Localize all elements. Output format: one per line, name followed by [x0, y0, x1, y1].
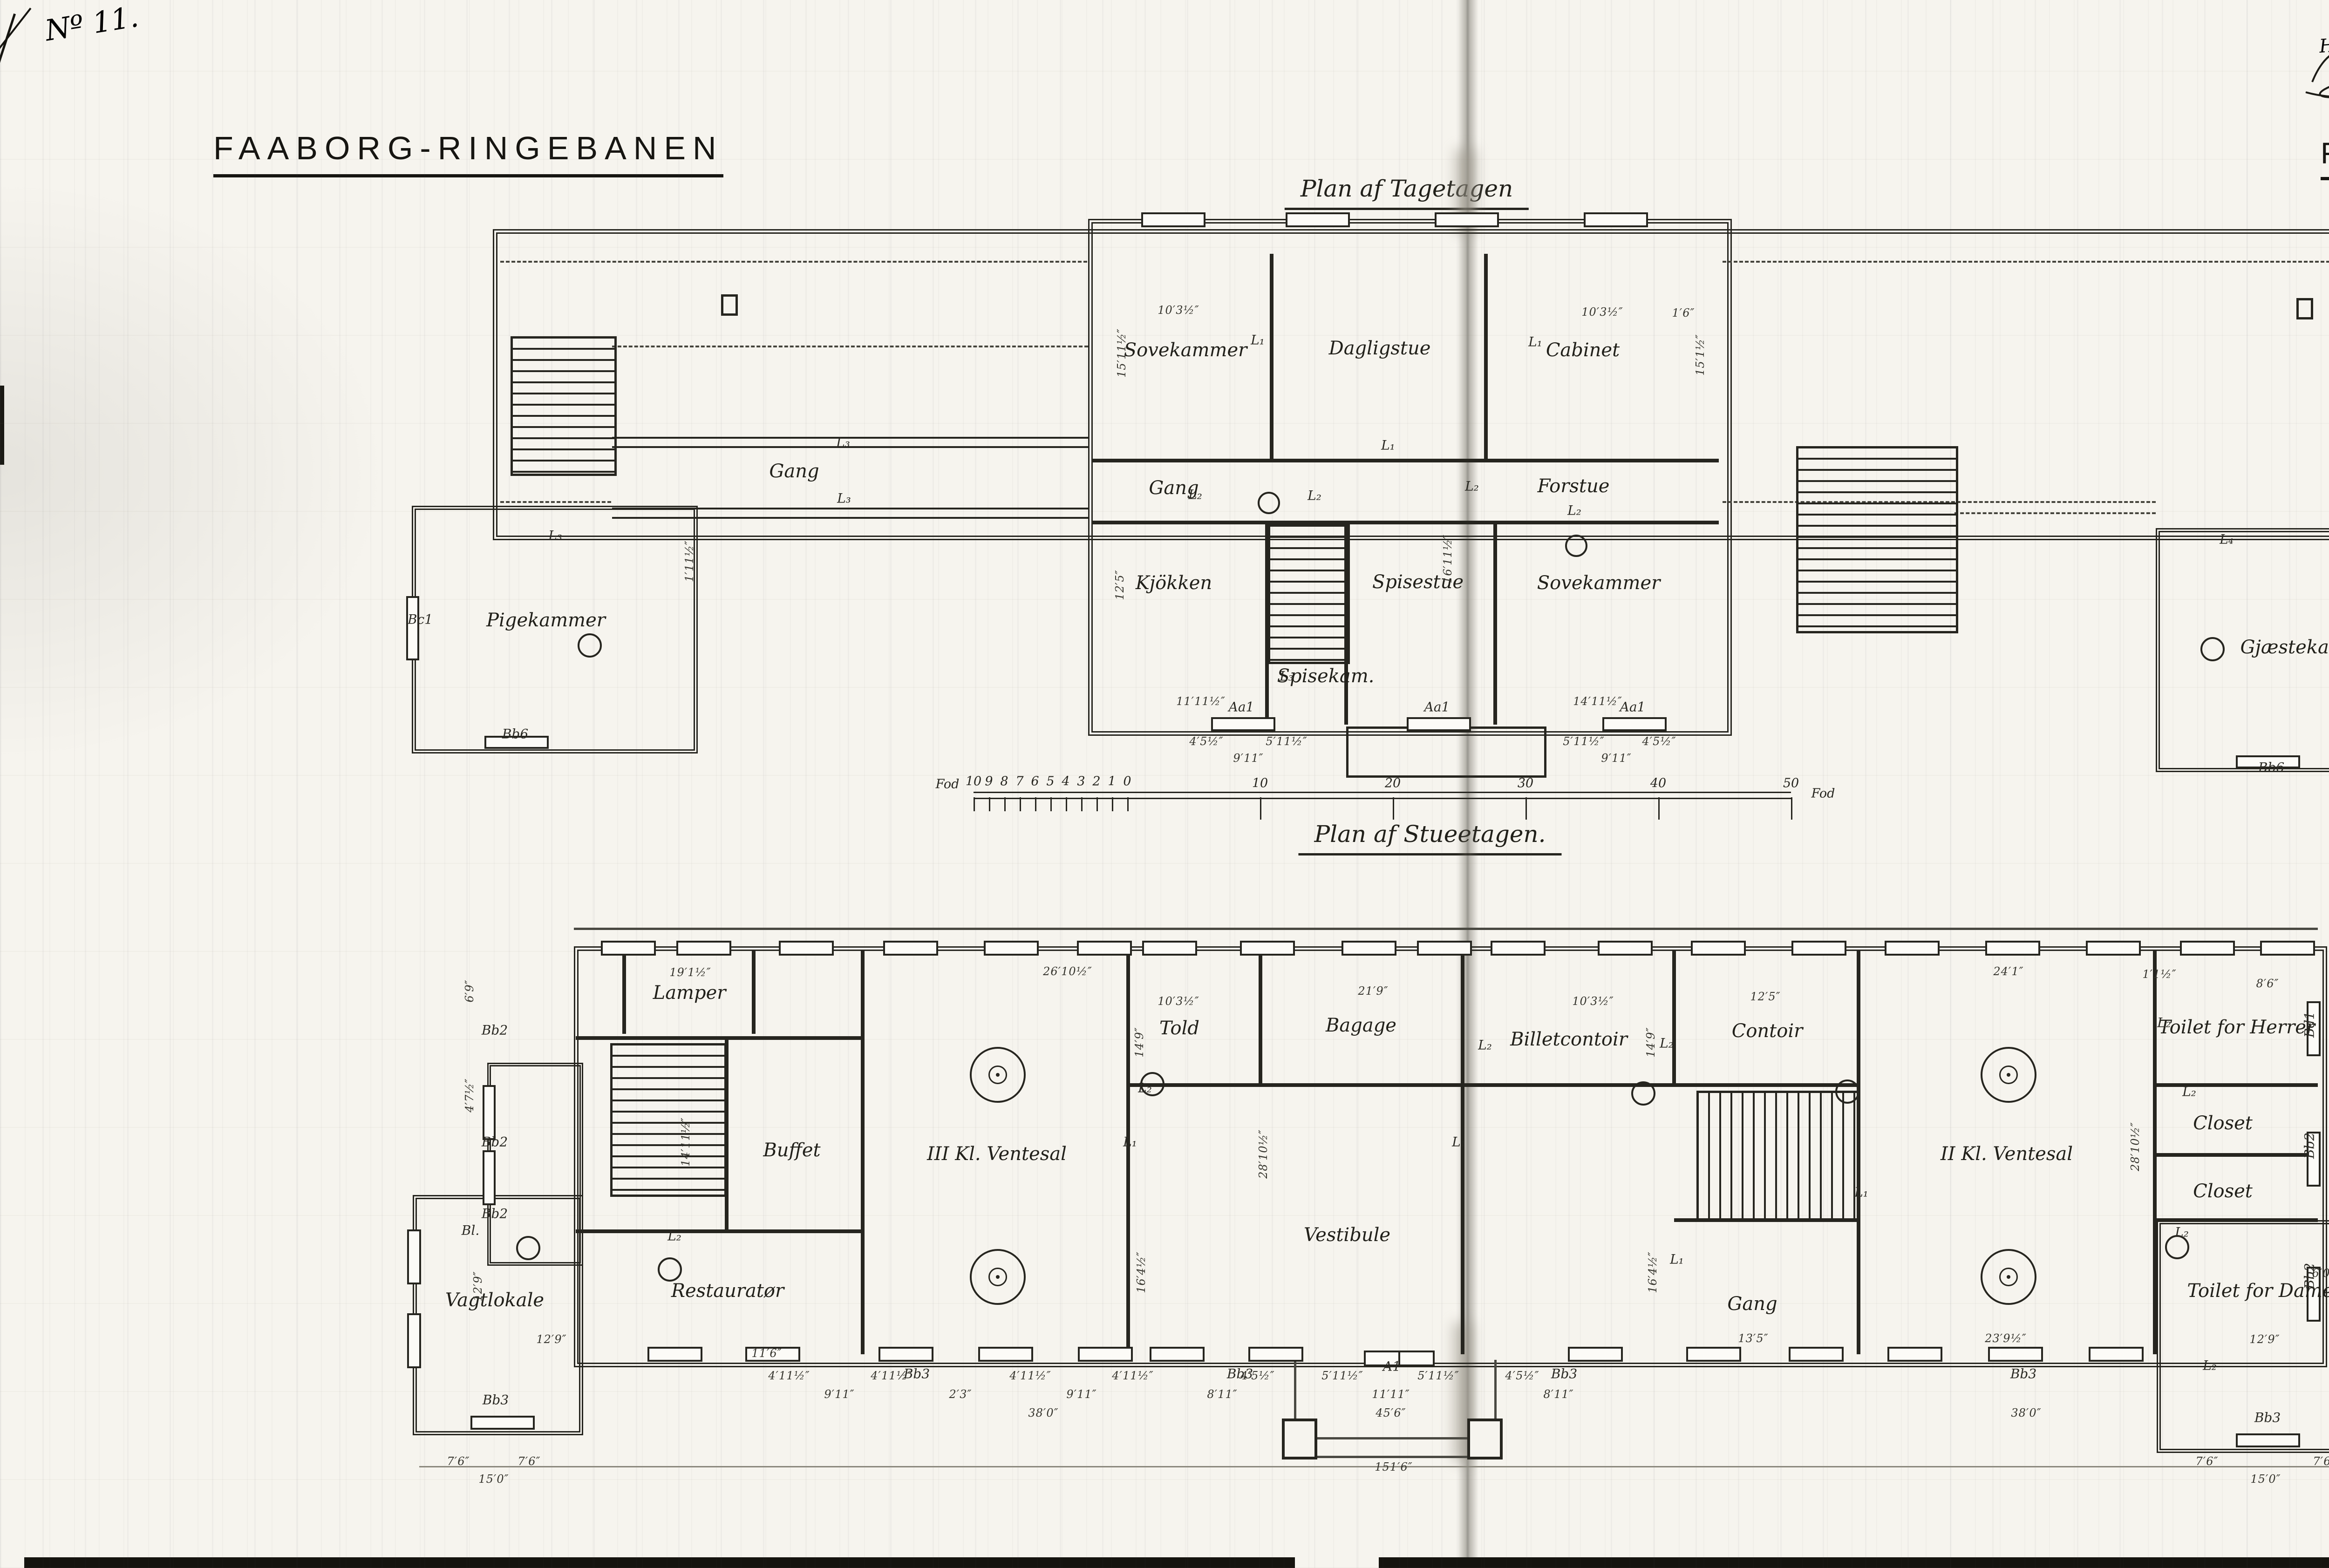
portico-pillar [1467, 1419, 1503, 1459]
ground-room-label: Closet [2193, 1181, 2253, 1202]
interior-wall [1484, 254, 1488, 462]
ground-ref-mark: L₂ [2182, 1084, 2196, 1100]
attic-ref-mark: Bb6 [2258, 760, 2284, 775]
scale-minor-tick [1096, 797, 1098, 811]
attic-ref-mark: L₁ [1381, 438, 1395, 453]
attic-dimension: 1′6″ [1672, 306, 1695, 319]
ground-window-front [1240, 941, 1295, 956]
attic-room-label: Gang [769, 461, 819, 482]
interior-wall [2157, 1083, 2318, 1087]
ground-dimension: 12′9″ [471, 1271, 484, 1301]
ground-dimension: 9′11″ [824, 1388, 854, 1401]
attic-window [1211, 717, 1275, 731]
attic-window [1435, 212, 1499, 227]
ground-ref-mark: L₂ [1478, 1038, 1492, 1053]
ground-dimension: 45′6″ [1376, 1406, 1406, 1419]
ground-dimension: 7′6″ [2196, 1455, 2219, 1468]
scan-edge-bottom [24, 1557, 2329, 1568]
attic-dimension: 15′1½″ [1694, 334, 1707, 375]
ground-room-label: Vestibule [1304, 1224, 1390, 1246]
ground-ref-mark: Bb3 [2010, 1366, 2036, 1382]
ground-ref-mark: L₂ [2203, 1358, 2217, 1373]
attic-kitchen-stair [1268, 524, 1350, 664]
ground-room-label: II Kl. Ventesal [1941, 1143, 2073, 1165]
scale-minor-number: 3 [1077, 774, 1085, 789]
interior-wall [1461, 950, 1464, 1354]
attic-dimension: 4′5½″ [1642, 735, 1676, 748]
signature-flourish-icon [2301, 37, 2329, 107]
ground-dimension: 38′0″ [1028, 1406, 1058, 1419]
portico-side-line [1294, 1360, 1296, 1420]
ground-dimension: 2′3″ [949, 1388, 972, 1401]
scale-minor-number: 1 [1108, 774, 1116, 789]
scale-minor-tick [1020, 797, 1021, 811]
attic-room-label: Cabinet [1546, 339, 1620, 361]
ground-dimension: 23′9½″ [1985, 1332, 2026, 1345]
attic-ref-mark: Aa1 [1620, 699, 1646, 715]
attic-ref-mark: L₁ [1528, 334, 1542, 350]
ground-window-front [2180, 941, 2235, 956]
ground-window-front [1598, 941, 1653, 956]
scale-minor-tick [1127, 797, 1129, 811]
ground-window-rear [1568, 1347, 1623, 1362]
ground-window-rear [1686, 1347, 1741, 1362]
interior-wall [576, 1229, 863, 1233]
attic-dimension: 1′11½″ [683, 540, 696, 582]
attic-corridor-wall [612, 508, 1089, 519]
ground-window-rear [878, 1347, 933, 1362]
interior-wall [2157, 1218, 2318, 1222]
ground-room-label: Told [1159, 1018, 1199, 1039]
ground-left-stair [610, 1043, 727, 1197]
scale-major-number: 40 [1650, 776, 1666, 791]
ground-ref-mark: Bb2 [482, 1023, 508, 1038]
scale-minor-tick [1081, 797, 1083, 811]
railway-title: FAABORG-RINGEBANEN [213, 129, 723, 177]
ground-dimension: 7′6″ [518, 1455, 541, 1468]
attic-window [1407, 717, 1471, 731]
ground-window [407, 1313, 421, 1368]
attic-dimension: 10′3½″ [1158, 304, 1199, 317]
ground-dimension: 38′0″ [2011, 1406, 2041, 1419]
scale-major-tick [1658, 797, 1660, 820]
attic-dimension: 9′11″ [1233, 752, 1263, 765]
ground-window-front [2260, 941, 2315, 956]
ground-room-label: Contoir [1732, 1020, 1803, 1042]
ground-window-rear [1789, 1347, 1844, 1362]
ground-dimension: 15′0″ [478, 1473, 509, 1486]
interior-wall [861, 950, 865, 1354]
attic-room-label: Dagligstue [1329, 338, 1431, 359]
attic-left-stair [511, 336, 617, 476]
ground-window-front [1885, 941, 1940, 956]
stove-circle [1258, 492, 1280, 514]
scale-minor-number: 10 [966, 774, 981, 789]
ground-window-rear [1078, 1347, 1133, 1362]
attic-dimension: 10′3½″ [1581, 305, 1623, 319]
ground-ref-mark: L₁ [1670, 1252, 1684, 1267]
ground-ref-mark: L₂ [667, 1229, 681, 1244]
ground-dimension: 7′6″ [2313, 1455, 2329, 1468]
ground-dimension: 11′11″ [1372, 1388, 1410, 1401]
attic-ref-mark: L₃ [1280, 669, 1294, 684]
scale-minor-number: 2 [1092, 774, 1100, 789]
attic-ref-mark: Bb6 [502, 726, 528, 742]
ground-room-label: Restauratør [671, 1280, 784, 1302]
ground-right-stair [1696, 1091, 1859, 1221]
ground-ref-mark: L₁ [1452, 1134, 1466, 1150]
ground-dimension: 6′0″ [2312, 1267, 2329, 1280]
ground-window-rear [1988, 1347, 2043, 1362]
ground-dimension: 8′6″ [2256, 977, 2279, 990]
chimney-mark [721, 294, 738, 316]
ground-plan-title: Plan af Stueetagen. [1298, 821, 1561, 848]
scale-minor-number: 0 [1123, 774, 1131, 789]
ground-window-front [1491, 941, 1546, 956]
scale-major-tick [1260, 797, 1261, 820]
scale-minor-number: 4 [1062, 774, 1069, 789]
attic-ref-mark: L₁ [1251, 333, 1265, 348]
ground-dimension: 8′11″ [1543, 1388, 1573, 1401]
ground-ref-mark: Bl. [462, 1223, 479, 1238]
interior-wall [1672, 950, 1676, 1085]
scale-minor-tick [1004, 797, 1006, 811]
ground-room-label: Toilet for Herrer [2159, 1017, 2315, 1038]
stove-circle [1835, 1079, 1859, 1104]
ground-ref-mark: A1 [1383, 1359, 1401, 1374]
scale-minor-number: 7 [1015, 774, 1023, 789]
ground-dimension: 4′11½″ [871, 1369, 912, 1382]
stove-circle [658, 1257, 682, 1282]
scale-minor-tick [1066, 797, 1067, 811]
scale-minor-tick [989, 797, 990, 811]
attic-ref-mark: Aa1 [1424, 699, 1450, 715]
ground-ref-mark: Bb2 [482, 1206, 508, 1222]
ground-dimension: 4′11½″ [768, 1369, 810, 1382]
ceiling-rosette [970, 1249, 1026, 1305]
ground-window-front [984, 941, 1039, 956]
ground-dimension: 9′11″ [1066, 1388, 1096, 1401]
sheet-number: Nº 11. [43, 0, 141, 48]
ground-dimension: 5′11½″ [1417, 1369, 1459, 1382]
attic-room-label: Pigekammer [486, 610, 606, 631]
scale-major-number: 10 [1252, 776, 1268, 791]
interior-wall [1126, 950, 1130, 1354]
scale-major-number: 50 [1783, 776, 1799, 791]
ground-left-annex [487, 1063, 583, 1266]
ground-window-front [1342, 941, 1396, 956]
ground-dimension: 4′7½″ [463, 1078, 476, 1112]
ground-dimension: 1′1½″ [2142, 968, 2176, 981]
ground-window [470, 1416, 535, 1430]
attic-room-label: Gjæstekammer [2240, 637, 2329, 658]
scale-major-number: 30 [1518, 776, 1533, 791]
ground-dimension: 13′5″ [1738, 1332, 1768, 1345]
ground-ref-mark: L₁ [1854, 1185, 1868, 1200]
attic-ref-mark: L₂ [1465, 479, 1479, 494]
ground-window-front [779, 941, 834, 956]
attic-room-label: Sovekammer [1537, 572, 1661, 594]
attic-window [1286, 212, 1350, 227]
scale-unit-label: Fod [1811, 787, 1835, 801]
stove-circle [516, 1236, 540, 1260]
scale-minor-tick [1112, 797, 1113, 811]
ground-window-front [601, 941, 656, 956]
ground-dimension: 12′9″ [2249, 1333, 2280, 1346]
attic-dimension: 16′11½″ [1441, 534, 1454, 584]
ground-ref-mark: L₂ [2157, 1015, 2171, 1031]
ground-ref-mark: Bb2 [482, 1134, 508, 1150]
ground-window-front [1791, 941, 1846, 956]
stove-circle [2200, 637, 2225, 661]
attic-window [1602, 717, 1667, 731]
ground-dimension: 4′11½″ [1112, 1369, 1153, 1382]
ground-ref-mark: L₂ [1138, 1080, 1152, 1096]
scale-minor-tick [1050, 797, 1052, 811]
roof-dashed-line [500, 261, 1087, 263]
interior-wall [1092, 521, 1719, 524]
ground-room-label: Vagtlokale [445, 1290, 544, 1311]
ground-dimension: 26′10½″ [1043, 965, 1092, 978]
ground-window [1398, 1351, 1435, 1366]
ground-ref-mark: Bb3 [1551, 1366, 1577, 1382]
ceiling-rosette [1981, 1047, 2036, 1103]
interior-wall [1259, 950, 1262, 1085]
ground-window-rear [1150, 1347, 1205, 1362]
attic-ref-mark: L₃ [548, 528, 562, 543]
ground-dimension: 151′6″ [1375, 1460, 1413, 1473]
scale-major-tick [1393, 797, 1394, 820]
interior-wall [1270, 254, 1273, 462]
attic-ref-mark: L₃ [836, 435, 850, 450]
ground-dimension: 5′11½″ [1321, 1369, 1363, 1382]
ground-room-label: Bagage [1326, 1015, 1396, 1036]
portico-side-line [1494, 1360, 1497, 1420]
stove-circle [1631, 1081, 1655, 1106]
ground-dimension: 28′10½″ [2129, 1122, 2142, 1171]
ground-ref-mark: Bb2 [2302, 1133, 2317, 1159]
attic-dimension: 12′5″ [1113, 570, 1126, 600]
scale-major-tick [1791, 797, 1792, 820]
ground-window-front [676, 941, 731, 956]
ground-room-label: Buffet [763, 1140, 820, 1161]
attic-ref-mark: L₂ [1567, 503, 1581, 518]
ground-room-label: Gang [1727, 1293, 1777, 1315]
ground-dimension: 4′5½″ [1240, 1369, 1274, 1382]
attic-dimension: 5′11½″ [1563, 735, 1604, 748]
attic-plan-title: Plan af Tagetagen [1285, 175, 1529, 202]
attic-room-label: Forstue [1538, 475, 1610, 497]
scale-minor-number: 6 [1031, 774, 1039, 789]
scan-edge-gap [1295, 1557, 1379, 1568]
ground-dimension: 4′11½″ [1009, 1369, 1051, 1382]
attic-window [1141, 212, 1205, 227]
attic-dimension: 15′11½″ [1115, 328, 1128, 378]
station-title: FAABORG STATION [2321, 136, 2329, 180]
attic-ref-mark: L₄ [2220, 532, 2234, 547]
attic-room-label: Kjökken [1136, 572, 1212, 594]
interior-wall [1092, 459, 1719, 462]
interior-wall [1493, 524, 1497, 725]
platform-edge-line [574, 928, 2318, 930]
ground-dimension: 14′11½″ [679, 1117, 692, 1167]
ground-dimension: 8′11″ [1207, 1388, 1237, 1401]
attic-dimension: 11′11½″ [1176, 695, 1226, 708]
ground-dimension: 7′6″ [447, 1455, 470, 1468]
ground-dimension: 21′9″ [1358, 984, 1388, 998]
attic-ref-mark: L₂ [1188, 487, 1202, 502]
ground-room-label: Billetcontoir [1510, 1029, 1628, 1050]
ground-dimension: 12′9″ [536, 1333, 566, 1346]
ground-dimension: 16′4½″ [1646, 1251, 1659, 1293]
ground-window-front [1142, 941, 1197, 956]
ground-window-front [1985, 941, 2040, 956]
ceiling-rosette [970, 1047, 1026, 1103]
ground-dimension: 11′6″ [751, 1347, 782, 1360]
stove-circle [1565, 535, 1587, 557]
ground-window [483, 1085, 496, 1140]
ground-dimension: 19′1½″ [669, 966, 711, 979]
scale-minor-tick [1035, 797, 1036, 811]
ground-ref-mark: Bd1 [2302, 1011, 2317, 1038]
ground-window-rear [978, 1347, 1033, 1362]
scale-minor-number: 5 [1046, 774, 1054, 789]
ground-room-label: Lamper [653, 982, 726, 1004]
roof-dashed-line [1954, 512, 2156, 514]
scanned-drawing-sheet: Nº 11. FAABORG-RINGEBANEN Henhørende til… [0, 0, 2329, 1568]
scale-minor-tick [974, 797, 975, 811]
ground-window-rear [1248, 1347, 1303, 1362]
attic-room-label: Sovekammer [1124, 339, 1247, 361]
ground-dimension: 10′3½″ [1158, 995, 1199, 1008]
ground-window [483, 1150, 496, 1205]
scale-major-number: 20 [1385, 776, 1401, 791]
ground-window [2236, 1433, 2300, 1447]
attic-dimension: 4′5½″ [1189, 735, 1223, 748]
ground-dimension: 10′3½″ [1572, 995, 1614, 1008]
chimney-mark [2296, 298, 2313, 319]
attic-dimension: 5′11½″ [1266, 735, 1307, 748]
attic-dimension: 14′11½″ [1573, 695, 1622, 708]
overall-dim-line [419, 1466, 2329, 1467]
roof-dashed-line [612, 346, 1088, 347]
attic-ref-mark: Bc1 [408, 612, 433, 627]
interior-wall [622, 950, 626, 1034]
attic-window [1584, 212, 1648, 227]
ceiling-rosette [1981, 1249, 2036, 1305]
ground-dimension: 14′9″ [1133, 1027, 1146, 1057]
ground-dimension: 6′9″ [463, 980, 476, 1003]
ground-window-rear [1887, 1347, 1942, 1362]
ground-window-front [1077, 941, 1132, 956]
ground-room-label: Closet [2193, 1113, 2253, 1134]
ground-window-front [1691, 941, 1746, 956]
ground-room-label: III Kl. Ventesal [927, 1143, 1067, 1165]
ground-dimension: 4′5½″ [1505, 1369, 1539, 1382]
attic-ref-mark: L₂ [1308, 488, 1321, 503]
interior-wall [576, 1036, 863, 1040]
ground-window-rear [647, 1347, 702, 1362]
scale-minor-number: 8 [1000, 774, 1008, 789]
attic-dimension: 9′11″ [1601, 752, 1631, 765]
scan-mark-left [0, 386, 4, 465]
scale-major-tick [1525, 797, 1527, 820]
attic-ref-mark: L₃ [837, 491, 851, 506]
interior-wall [2157, 1153, 2318, 1157]
ground-dimension: 28′10½″ [1257, 1129, 1270, 1179]
attic-window [406, 596, 419, 660]
scan-mark-topleft [0, 14, 16, 81]
ground-window-rear [2089, 1347, 2144, 1362]
interior-wall [2153, 950, 2157, 1354]
ground-window-front [1417, 941, 1472, 956]
ground-dimension: 12′5″ [1750, 990, 1780, 1003]
ground-dimension: 24′1″ [1993, 965, 2023, 978]
ground-dimension: 16′4½″ [1135, 1251, 1148, 1293]
ground-dimension: 14′9″ [1644, 1027, 1657, 1057]
attic-ref-mark: Aa1 [1229, 699, 1254, 715]
stove-circle [578, 633, 602, 658]
attic-porch [1346, 726, 1546, 778]
ground-ref-mark: Bb3 [483, 1392, 509, 1408]
interior-wall [752, 950, 756, 1034]
portico-pillar [1282, 1419, 1317, 1459]
ground-window [407, 1229, 421, 1284]
attic-right-stair [1796, 446, 1958, 633]
ground-dimension: 15′0″ [2250, 1473, 2281, 1486]
ground-window-front [883, 941, 938, 956]
roof-dashed-line [1723, 261, 2329, 263]
scale-minor-number: 9 [985, 774, 993, 789]
ground-window-front [2086, 941, 2141, 956]
ground-ref-mark: L₂ [2175, 1225, 2189, 1240]
ground-ref-mark: L₂ [1660, 1036, 1674, 1051]
interior-wall [1130, 1083, 1859, 1087]
ground-ref-mark: Bb3 [2254, 1410, 2281, 1425]
scale-unit-label: Fod [936, 777, 960, 792]
roof-dashed-line [500, 501, 611, 503]
attic-corridor-wall [612, 437, 1089, 448]
ground-ref-mark: L₁ [1123, 1134, 1137, 1150]
